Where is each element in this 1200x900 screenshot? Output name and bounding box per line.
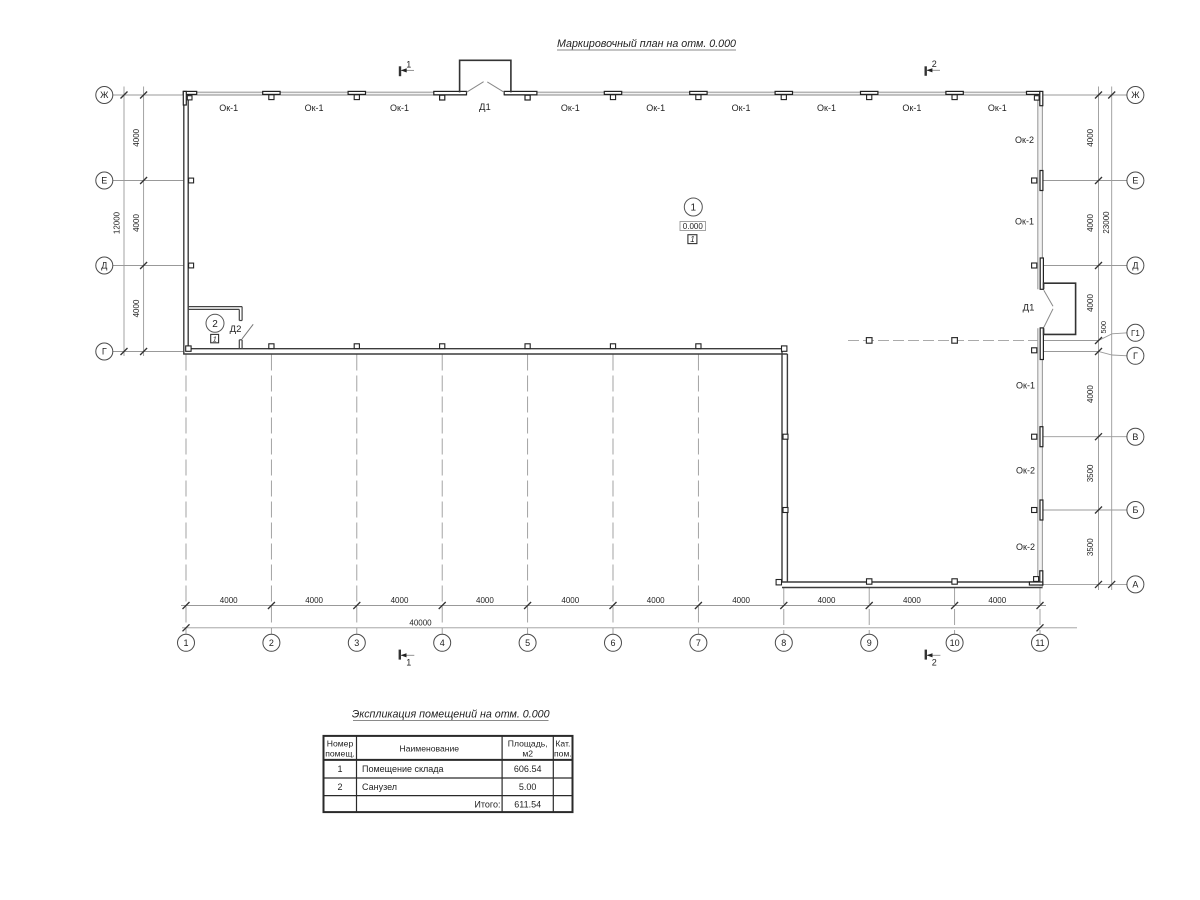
svg-text:Кат.: Кат. [555,738,570,748]
svg-text:4000: 4000 [1086,294,1095,312]
svg-text:Номер: Номер [327,738,354,748]
svg-text:4000: 4000 [132,299,141,317]
svg-text:2: 2 [212,319,218,330]
svg-text:помещ.: помещ. [325,748,355,758]
svg-text:Д2: Д2 [230,324,242,335]
svg-text:11: 11 [1035,638,1044,648]
svg-text:Ок-1: Ок-1 [561,103,580,113]
svg-text:4000: 4000 [132,128,141,146]
svg-text:23000: 23000 [1102,211,1111,234]
svg-text:1: 1 [337,764,342,774]
svg-text:Е: Е [101,176,107,186]
svg-text:4: 4 [440,638,445,648]
svg-text:40000: 40000 [409,618,432,627]
svg-text:4000: 4000 [476,596,494,605]
svg-text:В: В [1132,432,1138,442]
svg-text:Ж: Ж [1131,90,1140,100]
svg-text:Г: Г [1133,351,1138,361]
svg-text:Г1: Г1 [1131,329,1140,338]
svg-text:Б: Б [1132,505,1138,515]
svg-text:0.000: 0.000 [683,222,704,231]
svg-text:4000: 4000 [732,596,750,605]
svg-text:7: 7 [696,638,701,648]
svg-text:Площадь,: Площадь, [508,738,548,748]
svg-text:м2: м2 [522,748,533,758]
svg-text:9: 9 [867,638,872,648]
svg-text:Ок-1: Ок-1 [988,103,1007,113]
svg-text:Д1: Д1 [479,102,491,113]
svg-text:Ок-1: Ок-1 [902,103,921,113]
svg-text:1: 1 [691,203,697,214]
svg-text:1: 1 [213,334,217,343]
svg-text:Д: Д [101,261,107,271]
svg-text:4000: 4000 [220,596,238,605]
svg-text:3: 3 [354,638,359,648]
svg-text:10: 10 [950,638,960,648]
svg-text:Ок-1: Ок-1 [1016,381,1035,391]
svg-text:4000: 4000 [647,596,665,605]
svg-text:4000: 4000 [1086,385,1095,403]
svg-text:4000: 4000 [305,596,323,605]
svg-text:2: 2 [932,59,937,69]
svg-text:Ок-1: Ок-1 [646,103,665,113]
svg-text:Ок-1: Ок-1 [732,103,751,113]
svg-text:611.54: 611.54 [514,799,541,809]
svg-text:Ок-2: Ок-2 [1016,542,1035,552]
svg-text:Ок-1: Ок-1 [1015,217,1034,227]
svg-text:Ок-2: Ок-2 [1015,135,1034,145]
svg-text:5: 5 [525,638,530,648]
svg-text:Ок-1: Ок-1 [219,103,238,113]
svg-text:Ок-1: Ок-1 [817,103,836,113]
svg-text:12000: 12000 [112,211,121,234]
svg-text:1: 1 [183,638,188,648]
svg-text:8: 8 [781,638,786,648]
svg-text:Помещение склада: Помещение склада [362,764,444,774]
svg-text:1: 1 [690,235,694,244]
svg-text:2: 2 [337,782,342,792]
svg-text:Ж: Ж [100,90,109,100]
svg-text:6: 6 [610,638,615,648]
svg-text:1: 1 [406,59,411,69]
svg-text:4000: 4000 [561,596,579,605]
svg-text:Наименование: Наименование [400,744,460,754]
svg-text:4000: 4000 [903,596,921,605]
svg-text:4000: 4000 [132,214,141,232]
svg-text:4000: 4000 [391,596,409,605]
svg-text:4000: 4000 [1086,214,1095,232]
svg-text:Санузел: Санузел [362,782,397,792]
svg-text:4000: 4000 [818,596,836,605]
svg-text:Д1: Д1 [1023,302,1035,313]
svg-text:Ок-2: Ок-2 [1016,466,1035,476]
svg-text:3500: 3500 [1086,464,1095,482]
svg-text:500: 500 [1099,321,1108,334]
svg-text:Ок-1: Ок-1 [305,103,324,113]
svg-text:2: 2 [269,638,274,648]
svg-text:Г: Г [102,347,107,357]
svg-text:5.00: 5.00 [519,782,537,792]
svg-text:3500: 3500 [1086,538,1095,556]
svg-text:Д: Д [1132,261,1138,271]
svg-text:пом.: пом. [554,748,572,758]
svg-text:2: 2 [932,658,937,668]
svg-text:Экспликация помещений на отм.: Экспликация помещений на отм. 0.000 [352,709,550,721]
svg-text:606.54: 606.54 [514,764,542,774]
svg-text:Е: Е [1132,176,1138,186]
svg-text:Итого:: Итого: [474,799,500,809]
svg-text:А: А [1132,580,1138,590]
svg-text:Маркировочный план на отм. 0.0: Маркировочный план на отм. 0.000 [557,38,736,50]
svg-text:4000: 4000 [988,596,1006,605]
svg-text:Ок-1: Ок-1 [390,103,409,113]
svg-text:1: 1 [406,658,411,668]
svg-text:4000: 4000 [1086,128,1095,146]
